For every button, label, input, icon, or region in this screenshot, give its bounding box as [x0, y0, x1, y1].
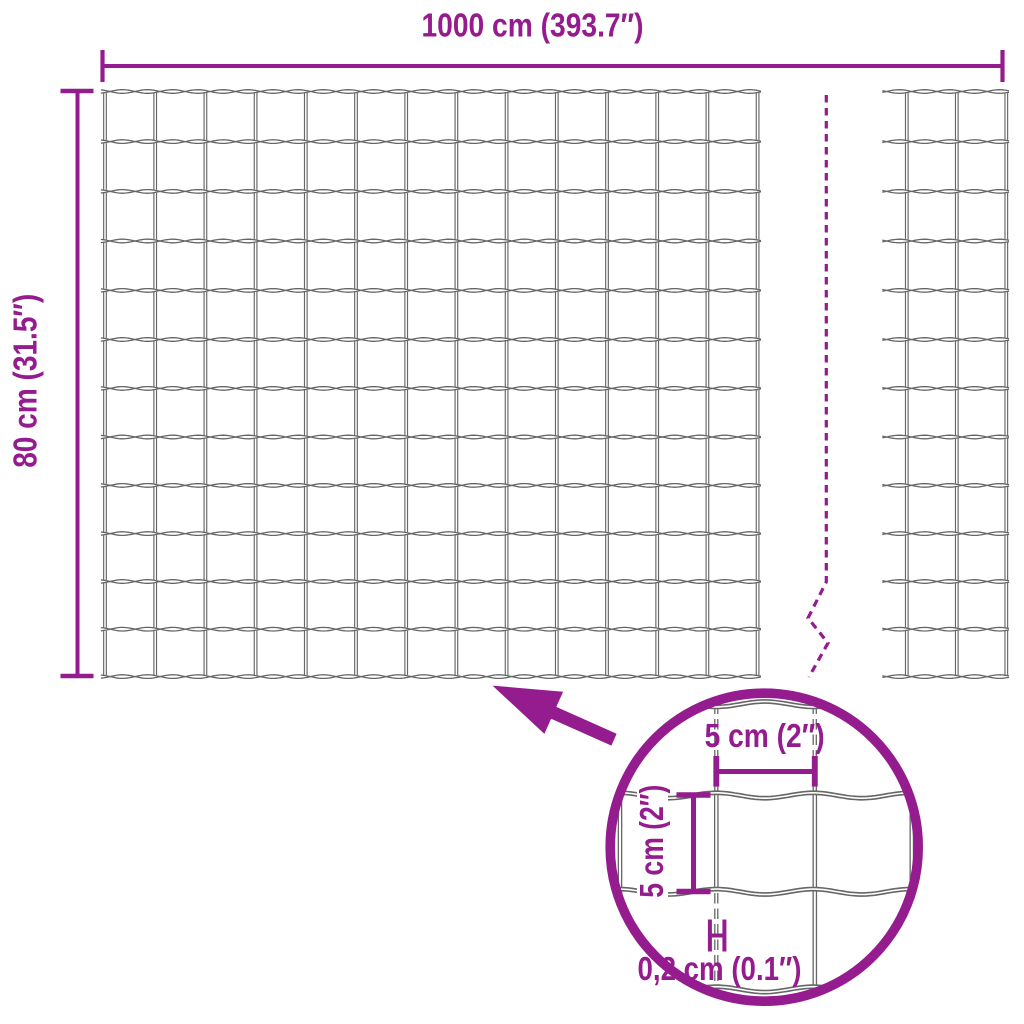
svg-text:0,2 cm (0.1″): 0,2 cm (0.1″) [638, 951, 802, 988]
svg-text:5 cm (2″): 5 cm (2″) [705, 718, 825, 755]
svg-text:1000 cm (393.7″): 1000 cm (393.7″) [422, 8, 644, 45]
svg-text:80 cm (31.5″): 80 cm (31.5″) [8, 294, 45, 468]
svg-text:5 cm (2″): 5 cm (2″) [634, 785, 671, 898]
